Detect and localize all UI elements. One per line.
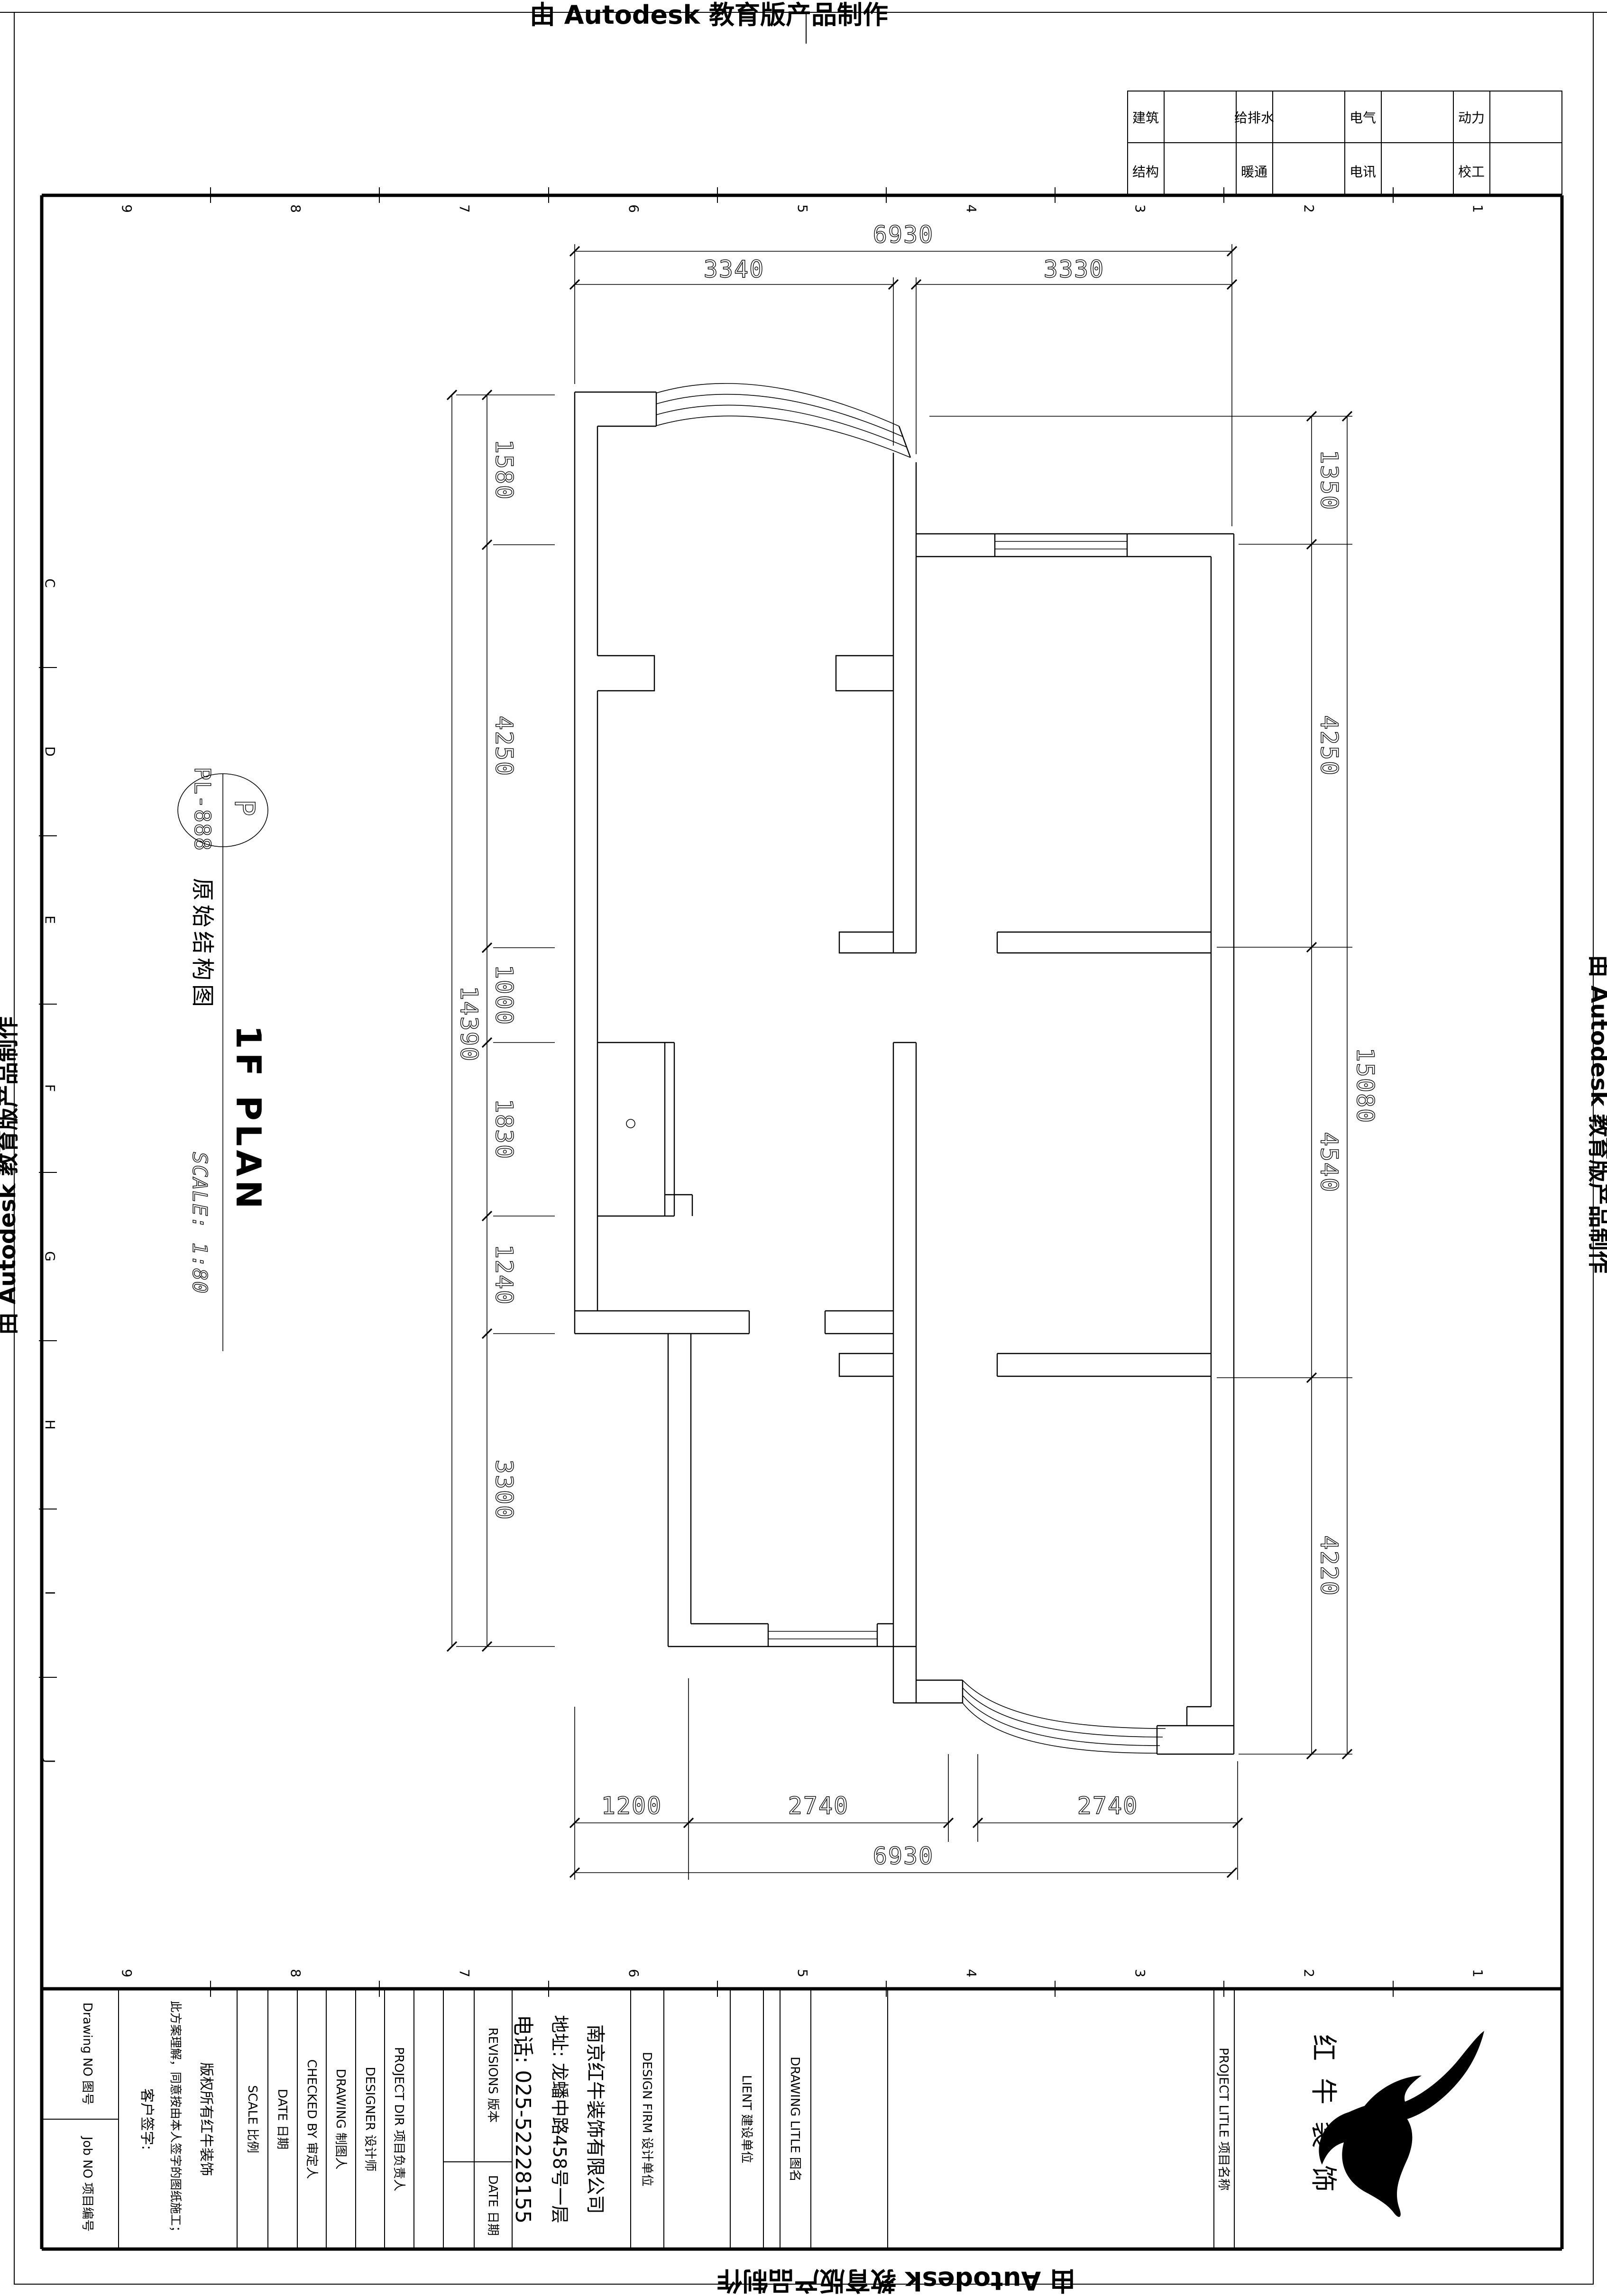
tb-revisions: REVISIONS 版本	[486, 2028, 500, 2123]
tb-company-name: 南京红牛装饰有限公司	[584, 2024, 606, 2214]
drawing-title-cn: 原始结构图	[189, 878, 216, 1011]
dim-label: 2740	[1077, 1792, 1138, 1820]
grid-number-bottom: 2	[1301, 1969, 1317, 1977]
tb-company-phone: 电话: 025-52228155	[511, 2015, 535, 2224]
grid-letter-left: J	[42, 1758, 58, 1763]
dim-label: 15080	[1351, 1048, 1379, 1124]
dimensions: 6930 3340 3330 1200 2740 2740 6930	[447, 221, 1379, 1880]
drawing-tag: P PL-888 原始结构图 1F PLAN SCALE: 1:80	[178, 767, 268, 1351]
tb-project-title: PROJECT LITLE 项目名称	[1216, 2048, 1231, 2191]
title-block: Drawing NO 图号 Job NO 项目编号 版权所有红牛装饰 此方案理解…	[42, 1989, 1562, 2249]
dim-label: 6930	[873, 221, 934, 248]
dim-label: 1000	[490, 965, 518, 1025]
bull-logo-horn-icon	[1361, 2031, 1484, 2122]
table-cell-label: 暖通	[1241, 164, 1267, 180]
dim-label: 3330	[1044, 256, 1104, 283]
table-cell-label: 校工	[1458, 164, 1485, 180]
dim-label: 6930	[873, 1842, 934, 1870]
grid-number-top: 2	[1301, 204, 1317, 213]
tag-code: PL-888	[190, 767, 215, 851]
drawing-title-en: 1F PLAN	[229, 1025, 268, 1213]
dim-label: 1580	[490, 439, 518, 500]
tb-date: DATE 日期	[275, 2089, 289, 2150]
grid-number-bottom: 4	[964, 1969, 979, 1977]
dim-label: 4540	[1315, 1132, 1343, 1193]
floor-plan	[575, 384, 1234, 1754]
table-cell-label: 电讯	[1350, 164, 1376, 180]
grid-letter-left: C	[42, 578, 58, 588]
grid-number-bottom: 3	[1132, 1969, 1148, 1977]
stamp-top: 由 Autodesk 教育版产品制作	[530, 0, 888, 30]
dim-label: 1350	[1315, 450, 1343, 511]
discipline-table: 建筑 给排水 电气 动力 结构 暖通 电讯 校工	[1128, 91, 1562, 194]
grid-number-top: 5	[795, 204, 810, 213]
company-logo: 红牛装饰	[1308, 2031, 1484, 2217]
tb-designer: DESIGNER 设计师	[363, 2067, 377, 2172]
grid-letter-left: E	[42, 915, 58, 924]
tb-job-no: Job NO 项目编号	[80, 2136, 94, 2232]
tb-design-firm: DESIGN FIRM 设计单位	[640, 2052, 654, 2186]
grid-number-bottom: 9	[119, 1969, 135, 1977]
tb-rev-date: DATE 日期	[486, 2175, 500, 2236]
grid-letter-left: I	[42, 1591, 58, 1595]
stamp-left: 由 Autodesk 教育版产品制作	[0, 1016, 21, 1335]
dim-label: 1240	[490, 1244, 518, 1305]
arc-window	[656, 384, 910, 457]
dim-label: 14390	[455, 986, 483, 1062]
tb-drawing: DRAWING 制图人	[333, 2069, 348, 2170]
table-cell-label: 结构	[1132, 164, 1159, 180]
tb-company-address: 地址: 龙蟠中路458号一层	[549, 2015, 570, 2223]
dim-label: 2740	[788, 1792, 849, 1820]
table-cell-label: 电气	[1350, 110, 1376, 126]
tb-drawing-no: Drawing NO 图号	[80, 2003, 94, 2105]
tb-checked: CHECKED BY 审定人	[304, 2059, 319, 2179]
grid-number-bottom: 1	[1470, 1969, 1486, 1977]
grid-number-top: 8	[288, 204, 303, 213]
tb-scale: SCALE 比例	[245, 2085, 259, 2153]
window-top-right	[995, 534, 1127, 557]
grid-letter-left: F	[42, 1084, 58, 1092]
dim-label: 4250	[490, 716, 518, 777]
grid-number-bottom: 8	[288, 1969, 303, 1977]
tb-client: LIENT 建设单位	[739, 2075, 753, 2163]
grid-letter-left: H	[42, 1419, 58, 1429]
tb-project-dir: PROJECT DIR 项目负责人	[392, 2047, 406, 2192]
grid-number-bottom: 7	[457, 1969, 472, 1977]
table-cell-label: 给排水	[1234, 110, 1274, 126]
dim-label: 4250	[1315, 715, 1343, 776]
grid-letter-left: G	[42, 1251, 58, 1262]
tb-disclaimer: 此方案理解，同意按由本人签字的图纸施工；	[169, 2001, 183, 2238]
grid-number-bottom: 5	[795, 1969, 810, 1977]
grid-letter-left: D	[42, 746, 58, 757]
dim-label: 3300	[490, 1460, 518, 1520]
grid-number-top: 4	[964, 204, 979, 213]
stamp-right: 由 Autodesk 教育版产品制作	[1586, 955, 1607, 1273]
dim-label: 3340	[704, 256, 764, 283]
shaft	[597, 1043, 692, 1216]
tb-disclaimer: 客户签字:	[138, 2088, 155, 2150]
stamp-bottom: 由 Autodesk 教育版产品制作	[717, 2266, 1075, 2296]
tb-drawing-title: DRAWING LITLE 图名	[788, 2057, 802, 2182]
grid-number-top: 9	[119, 204, 135, 213]
window-bottom-left	[768, 1624, 877, 1647]
grid-number-top: 1	[1470, 204, 1486, 213]
table-cell-label: 建筑	[1132, 110, 1159, 126]
grid-number-bottom: 6	[626, 1969, 642, 1977]
dim-label: 1830	[490, 1099, 518, 1160]
tag-letter: P	[229, 800, 261, 817]
tb-disclaimer: 版权所有红牛装饰	[198, 2062, 214, 2176]
curved-bay-window	[963, 1680, 1166, 1753]
grid-number-top: 3	[1132, 204, 1148, 213]
grid-number-top: 7	[457, 204, 472, 213]
table-cell-label: 动力	[1458, 110, 1485, 126]
drawing-sheet: 由 Autodesk 教育版产品制作 由 Autodesk 教育版产品制作 由 …	[0, 0, 1607, 2296]
grid-number-top: 6	[626, 204, 642, 213]
dim-label: 4220	[1315, 1536, 1343, 1596]
dim-label: 1200	[601, 1792, 662, 1820]
drawing-scale-label: SCALE: 1:80	[188, 1152, 211, 1294]
